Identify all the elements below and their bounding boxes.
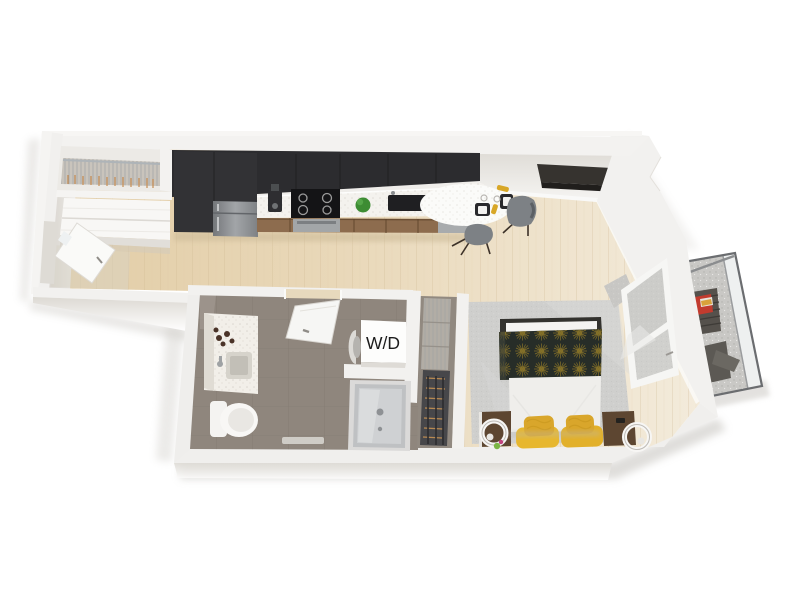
svg-text:W/D: W/D (366, 333, 400, 353)
